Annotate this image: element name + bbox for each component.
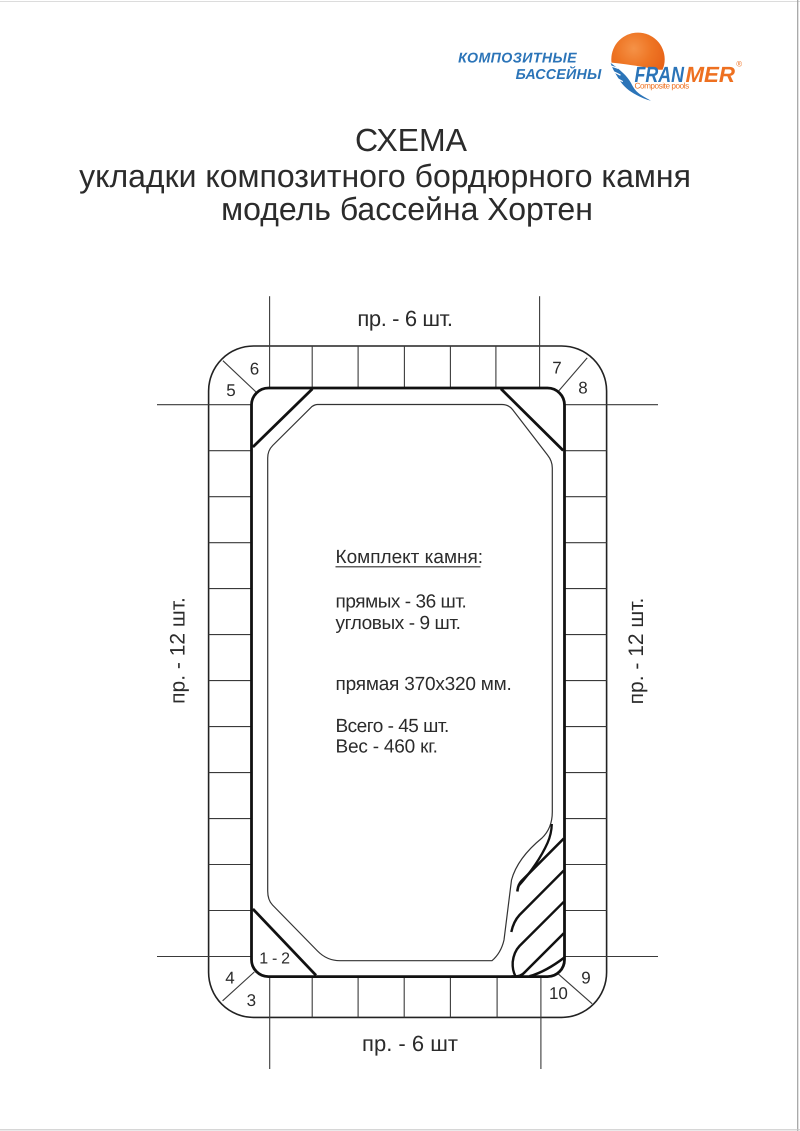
- svg-text:угловых - 9 шт.: угловых - 9 шт.: [336, 613, 461, 634]
- svg-text:прямая 370х320 мм.: прямая 370х320 мм.: [336, 674, 512, 695]
- svg-text:10: 10: [549, 984, 568, 1003]
- svg-text:9: 9: [581, 969, 590, 988]
- svg-text:БАССЕЙНЫ: БАССЕЙНЫ: [516, 66, 602, 83]
- svg-text:6: 6: [250, 360, 259, 379]
- svg-text:КОМПОЗИТНЫЕ: КОМПОЗИТНЫЕ: [458, 51, 577, 67]
- svg-text:Вес - 460 кг.: Вес - 460 кг.: [336, 736, 438, 757]
- svg-text:4: 4: [225, 969, 234, 988]
- svg-text:3: 3: [247, 991, 256, 1010]
- svg-text:пр. - 6 шт: пр. - 6 шт: [362, 1031, 458, 1056]
- svg-text:пр. - 12 шт.: пр. - 12 шт.: [167, 597, 190, 704]
- svg-text:5: 5: [226, 381, 235, 400]
- svg-text:®: ®: [736, 59, 742, 68]
- svg-text:Комплект камня:: Комплект камня:: [336, 547, 484, 568]
- svg-text:7: 7: [552, 359, 561, 378]
- svg-text:Всего - 45 шт.: Всего - 45 шт.: [336, 716, 449, 737]
- svg-text:MER: MER: [686, 62, 736, 87]
- svg-text:пр. - 6 шт.: пр. - 6 шт.: [357, 306, 452, 331]
- svg-text:укладки композитного бордюрног: укладки композитного бордюрного камня: [79, 158, 691, 194]
- svg-text:пр. - 12 шт.: пр. - 12 шт.: [625, 598, 648, 705]
- svg-text:Composite pools: Composite pools: [635, 82, 690, 91]
- svg-text:СХЕМА: СХЕМА: [355, 122, 468, 158]
- svg-text:прямых - 36 шт.: прямых - 36 шт.: [336, 592, 467, 613]
- svg-text:модель бассейна Хортен: модель бассейна Хортен: [221, 191, 593, 227]
- svg-text:8: 8: [578, 379, 587, 398]
- svg-text:1 - 2: 1 - 2: [259, 951, 290, 968]
